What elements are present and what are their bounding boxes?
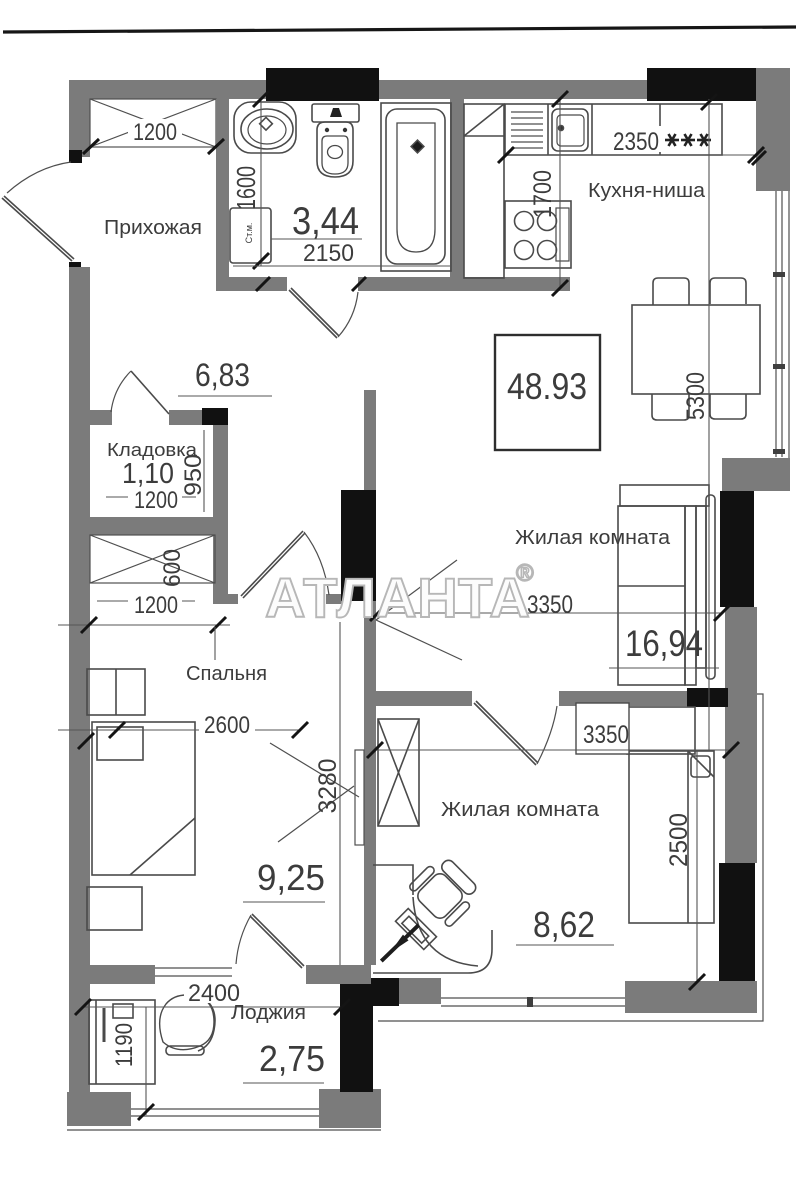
svg-text:5300: 5300 <box>682 372 710 420</box>
svg-text:Прихожая: Прихожая <box>104 217 202 239</box>
svg-text:3280: 3280 <box>314 759 342 814</box>
svg-text:2500: 2500 <box>665 813 693 867</box>
svg-text:3,44: 3,44 <box>292 200 359 243</box>
svg-text:АТЛАНТА: АТЛАНТА <box>265 566 530 629</box>
svg-text:48.93: 48.93 <box>507 366 587 407</box>
svg-text:3350: 3350 <box>527 591 573 619</box>
svg-text:2150: 2150 <box>303 240 354 267</box>
svg-text:2,75: 2,75 <box>259 1038 325 1079</box>
svg-text:Спальня: Спальня <box>186 663 267 685</box>
svg-text:2600: 2600 <box>204 712 250 739</box>
svg-text:9,25: 9,25 <box>257 857 325 898</box>
svg-text:16,94: 16,94 <box>625 623 703 664</box>
svg-text:1200: 1200 <box>134 487 178 514</box>
svg-text:Ст.м.: Ст.м. <box>244 223 254 244</box>
svg-text:3350: 3350 <box>583 721 629 749</box>
svg-text:1700: 1700 <box>529 170 557 218</box>
svg-text:600: 600 <box>159 549 186 587</box>
svg-text:Кухня-ниша: Кухня-ниша <box>588 180 706 202</box>
svg-text:2350: 2350 <box>613 128 659 156</box>
svg-text:1,10: 1,10 <box>122 458 174 490</box>
svg-text:6,83: 6,83 <box>195 357 250 393</box>
svg-text:Жилая комната: Жилая комната <box>441 799 600 821</box>
svg-text:Кладовка: Кладовка <box>107 440 198 460</box>
svg-text:1190: 1190 <box>111 1023 138 1067</box>
svg-text:1200: 1200 <box>133 119 177 146</box>
svg-text:950: 950 <box>180 454 207 496</box>
svg-text:®: ® <box>516 560 534 587</box>
svg-text:Жилая комната: Жилая комната <box>515 527 671 549</box>
svg-text:8,62: 8,62 <box>533 904 595 945</box>
svg-text:1600: 1600 <box>231 166 261 210</box>
svg-text:Лоджия: Лоджия <box>231 1002 306 1024</box>
svg-text:1200: 1200 <box>134 592 178 619</box>
